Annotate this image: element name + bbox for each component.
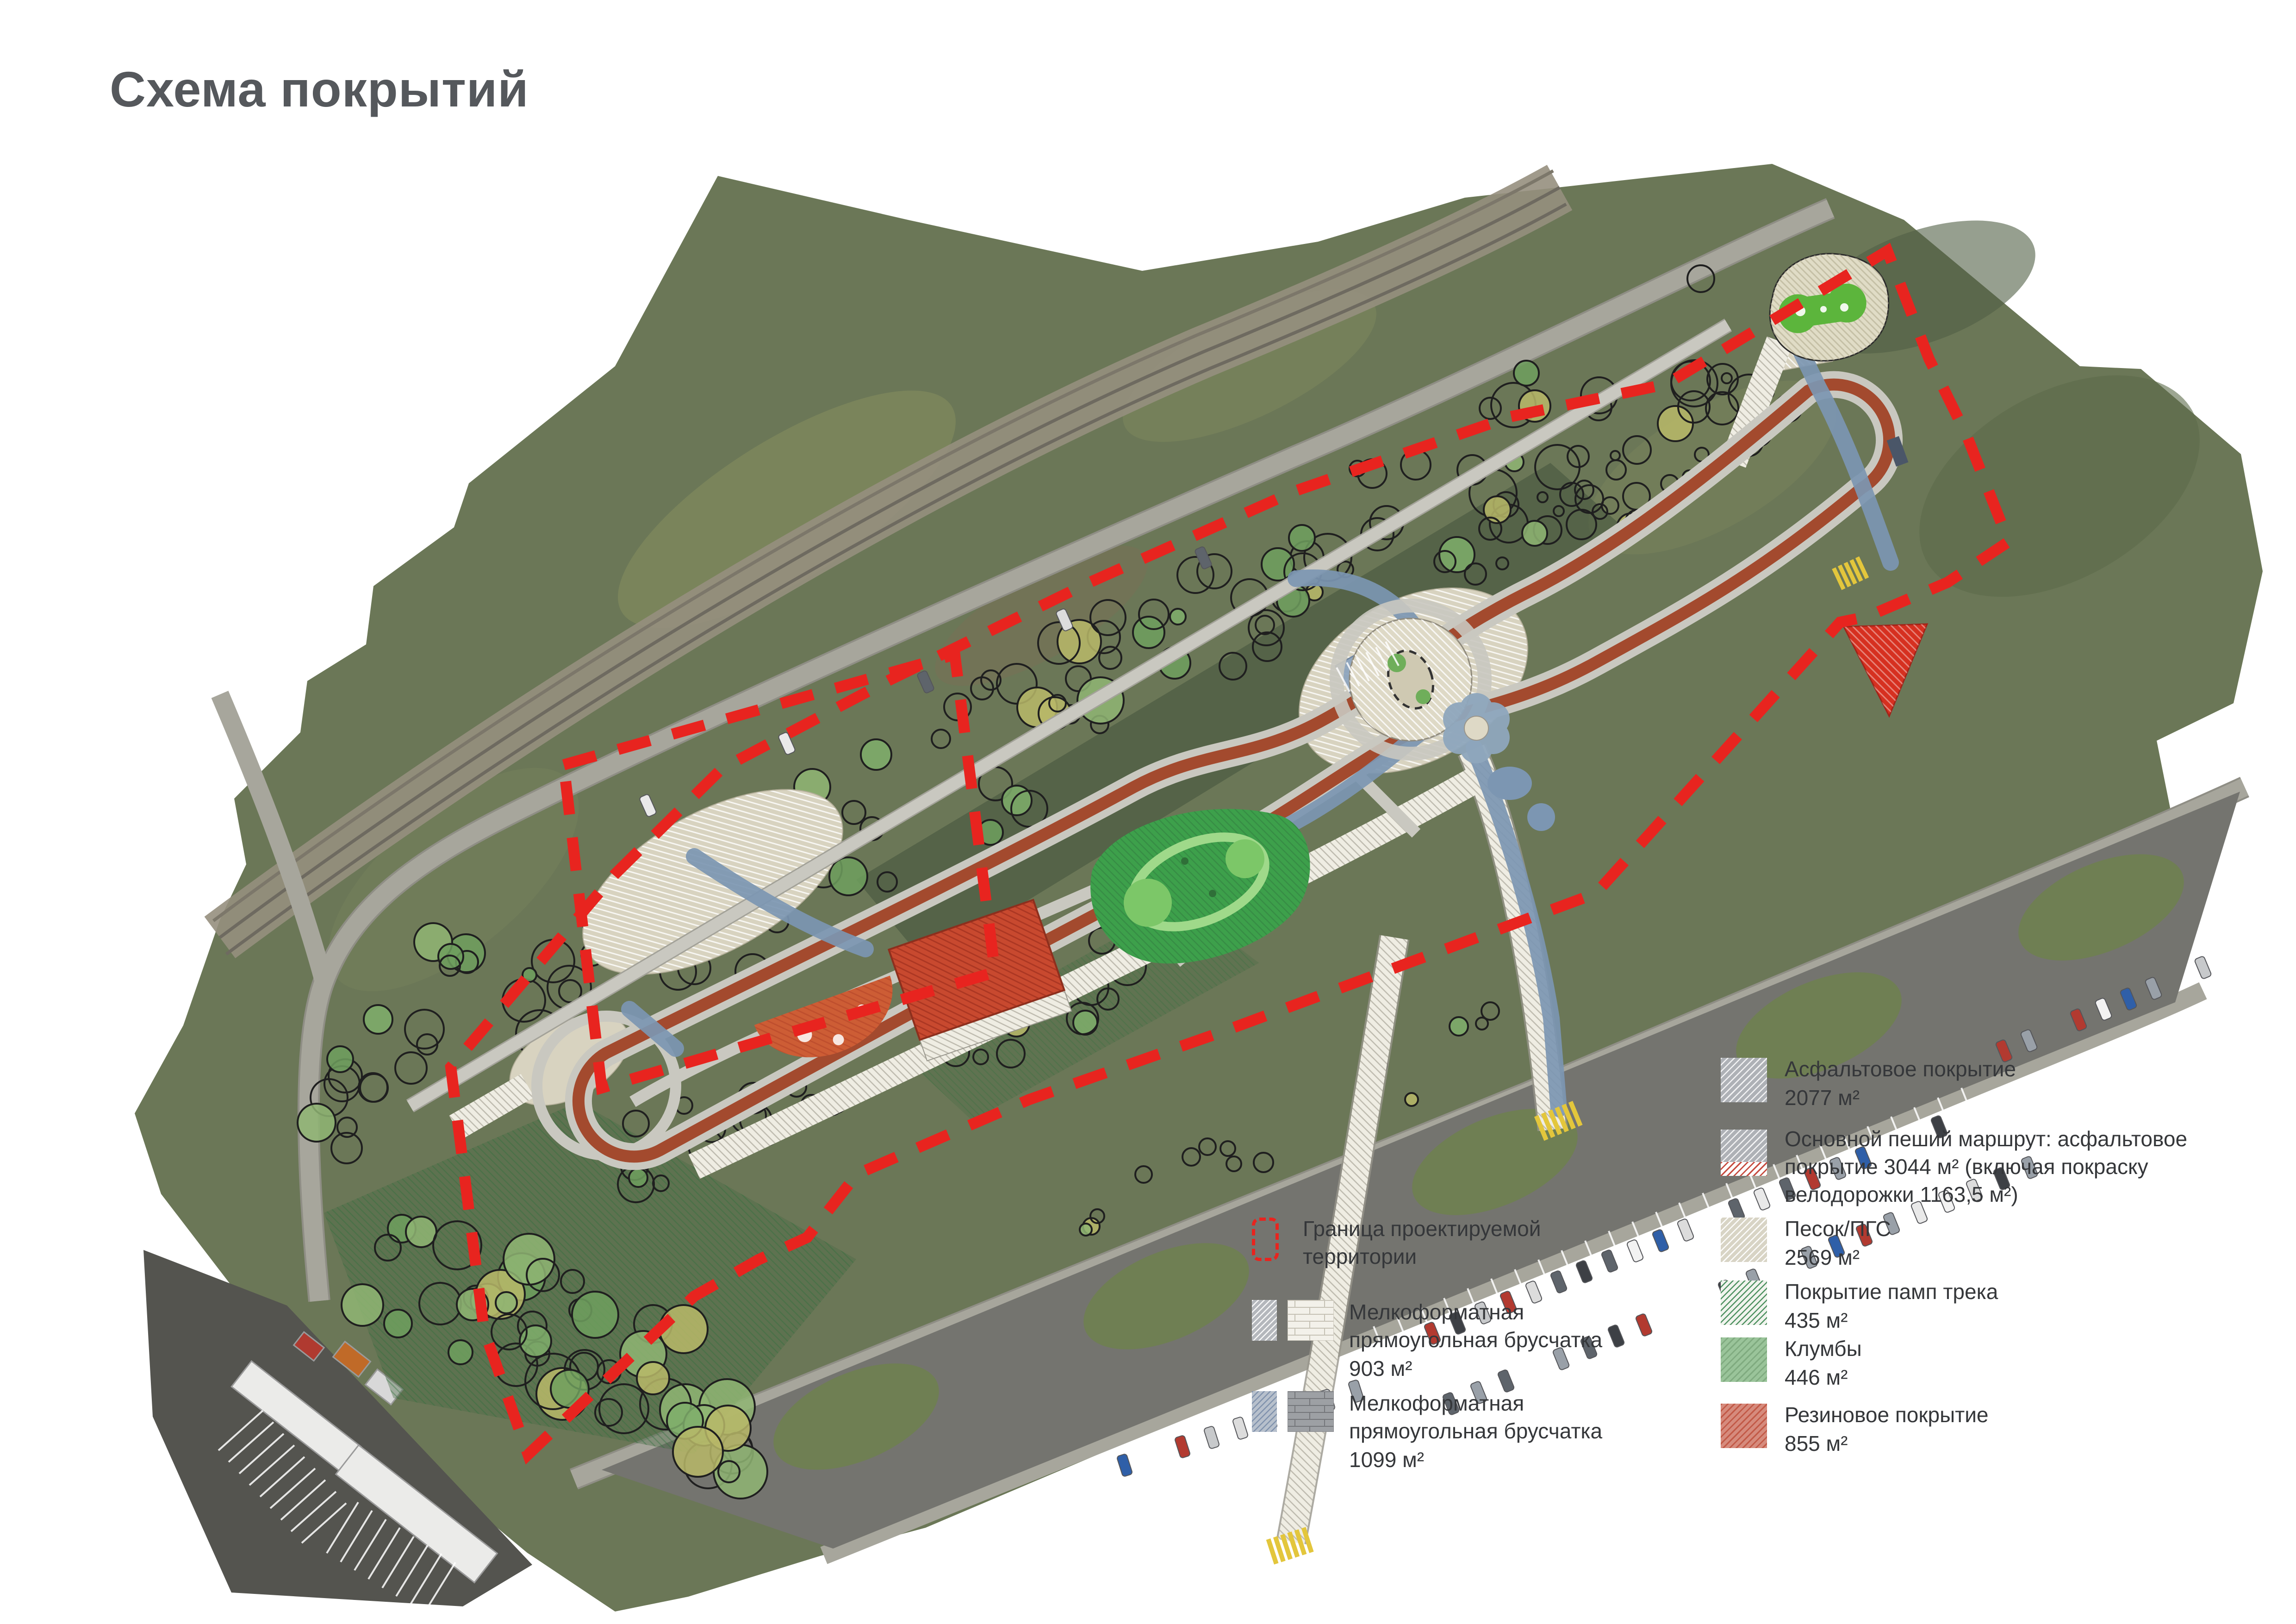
tree (673, 1427, 723, 1477)
tree (298, 1104, 336, 1142)
rubber-area: 855 м² (1785, 1430, 2201, 1456)
asphalt-swatch (1721, 1058, 1767, 1102)
paver-1099-label: Мелкоформатная прямоугольная брусчатка (1349, 1389, 1608, 1445)
tree (629, 1168, 647, 1187)
sand-swatch (1721, 1218, 1767, 1262)
tree (1514, 361, 1539, 386)
flowerbeds-area: 446 м² (1785, 1364, 2201, 1390)
parking-stall-line (1773, 1242, 1784, 1269)
parking-stall-line (1697, 1273, 1708, 1300)
tree (572, 1292, 618, 1338)
pond (1487, 767, 1532, 800)
tree (342, 1284, 383, 1326)
paver-903-brick-swatch (1288, 1300, 1334, 1341)
tree (384, 1310, 412, 1337)
tree (406, 1217, 436, 1247)
tree (364, 1005, 392, 1034)
car (1204, 1426, 1220, 1449)
car (1550, 1270, 1568, 1294)
pump-track-label: Покрытие памп трека (1785, 1278, 2201, 1305)
sheet: Схема покрытий Граница проектируемой тер… (0, 0, 2296, 1624)
tree (448, 1340, 473, 1364)
car (1753, 1187, 1771, 1211)
car (1652, 1229, 1669, 1253)
car (1117, 1454, 1133, 1477)
rubber-swatch (1721, 1404, 1767, 1448)
tree (1289, 525, 1315, 551)
paver-1099-area: 1099 м² (1349, 1447, 1608, 1473)
car (1232, 1417, 1249, 1440)
sand-label: Песок/ПГС (1785, 1215, 2201, 1243)
pump-track-area: 435 м² (1785, 1307, 2201, 1333)
tree (327, 1046, 353, 1072)
tree (1405, 1093, 1418, 1106)
tree (637, 1362, 669, 1394)
tree (1450, 1017, 1468, 1036)
car (1175, 1435, 1191, 1459)
page-title: Схема покрытий (110, 60, 529, 118)
tree (1073, 1011, 1097, 1035)
tree (1170, 609, 1186, 625)
legend-boundary-row: Граница проектируемой территории (1252, 1218, 1279, 1261)
flowerbeds-label: Клумбы (1785, 1335, 2201, 1362)
car (1677, 1218, 1694, 1242)
tree (1439, 537, 1475, 572)
tree (1658, 406, 1693, 441)
car (1607, 1324, 1625, 1348)
asphalt-area: 2077 м² (1785, 1085, 2201, 1111)
parking-stall-line (1671, 1283, 1682, 1310)
tree (1080, 1224, 1092, 1236)
car (1635, 1313, 1653, 1337)
main-route-label: Основной пеший маршрут: асфальтовое покр… (1785, 1125, 2201, 1208)
rubber-label: Резиновое покрытие (1785, 1401, 2201, 1429)
main-route-swatch-bottom (1721, 1162, 1767, 1176)
parking-stall-line (1646, 1293, 1657, 1320)
paver-903-area: 903 м² (1349, 1355, 1608, 1381)
asphalt-label: Асфальтовое покрытие (1785, 1055, 2201, 1083)
car (1601, 1249, 1618, 1273)
tree (829, 857, 867, 895)
parking-stall-line (1620, 1303, 1631, 1330)
tree (1522, 521, 1547, 546)
tree (1133, 617, 1164, 648)
flowerbeds-swatch (1721, 1337, 1767, 1382)
paver-1099-hatch-swatch (1252, 1391, 1277, 1432)
paver-903-hatch-swatch (1252, 1300, 1277, 1341)
car (2194, 956, 2212, 980)
paver-903-label: Мелкоформатная прямоугольная брусчатка (1349, 1298, 1608, 1354)
sand-area: 2569 м² (1785, 1244, 2201, 1270)
paver-1099-brick-swatch (1288, 1391, 1334, 1432)
legend-boundary-label: Граница проектируемой территории (1303, 1215, 1590, 1270)
tree (861, 739, 891, 770)
main-route-swatch-top (1721, 1130, 1767, 1162)
boundary-dashed-icon (1252, 1218, 1279, 1261)
tree (496, 1292, 517, 1313)
pump-track-swatch (1721, 1280, 1767, 1325)
